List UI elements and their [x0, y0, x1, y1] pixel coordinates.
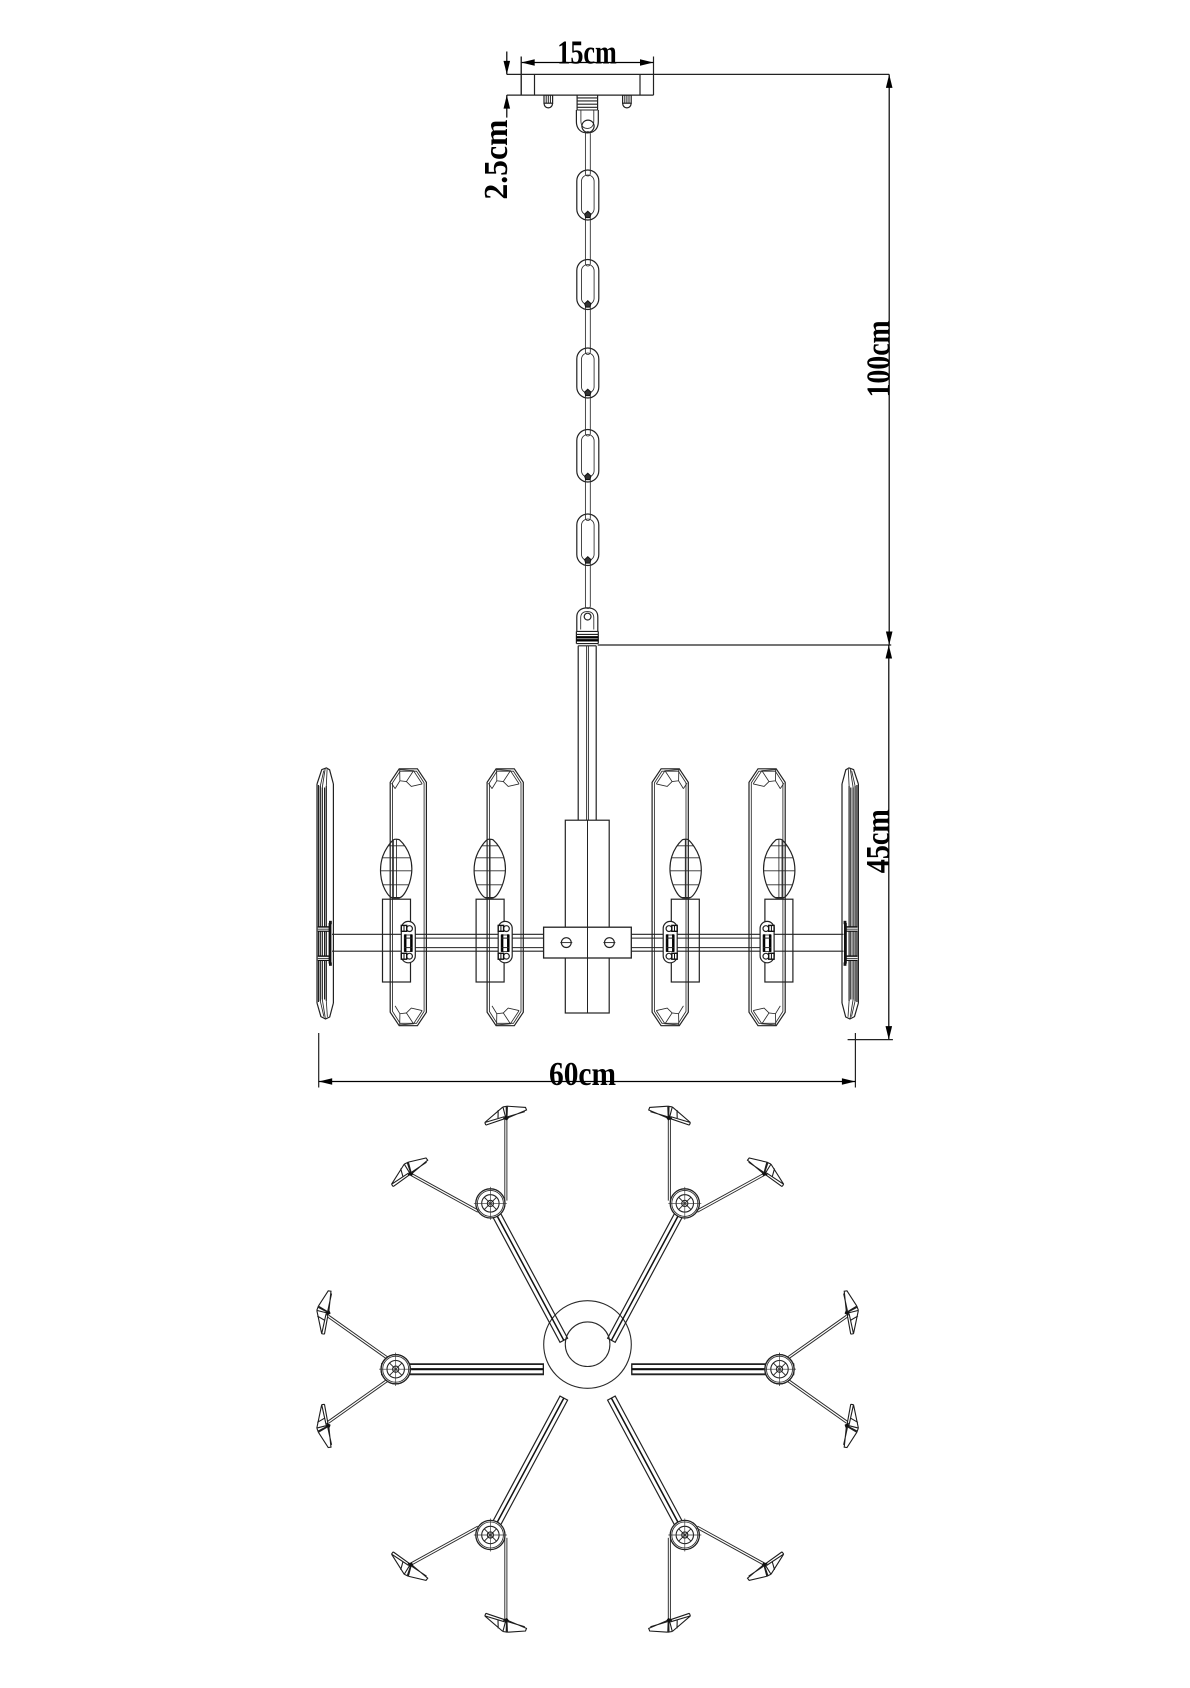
svg-text:2.5cm: 2.5cm — [478, 120, 515, 200]
svg-text:100cm: 100cm — [860, 320, 897, 397]
svg-text:60cm: 60cm — [549, 1056, 616, 1093]
svg-text:15cm: 15cm — [557, 34, 617, 71]
svg-text:45cm: 45cm — [860, 809, 897, 873]
